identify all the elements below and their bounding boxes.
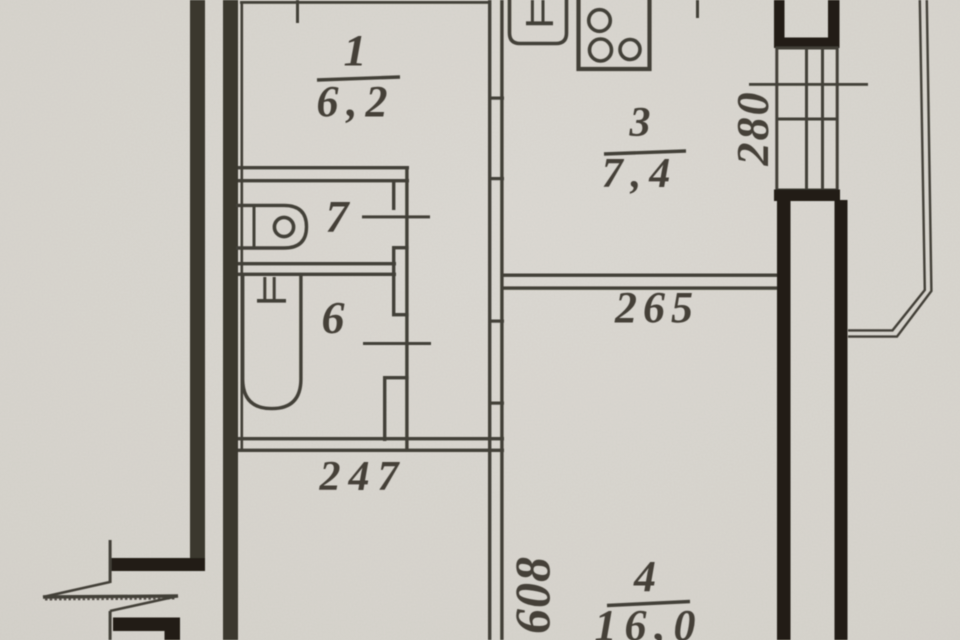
svg-text:247: 247 (319, 454, 407, 500)
svg-text:265: 265 (614, 283, 699, 332)
svg-text:6: 6 (322, 292, 345, 343)
svg-text:7: 7 (326, 191, 351, 242)
svg-text:608: 608 (504, 556, 560, 634)
svg-text:7,4: 7,4 (602, 151, 679, 197)
svg-text:4: 4 (633, 552, 656, 601)
svg-text:1: 1 (344, 26, 367, 75)
svg-text:3: 3 (629, 100, 651, 146)
svg-text:6,2: 6,2 (317, 77, 396, 126)
svg-text:280: 280 (727, 91, 778, 167)
svg-text:16,0: 16,0 (595, 601, 704, 640)
